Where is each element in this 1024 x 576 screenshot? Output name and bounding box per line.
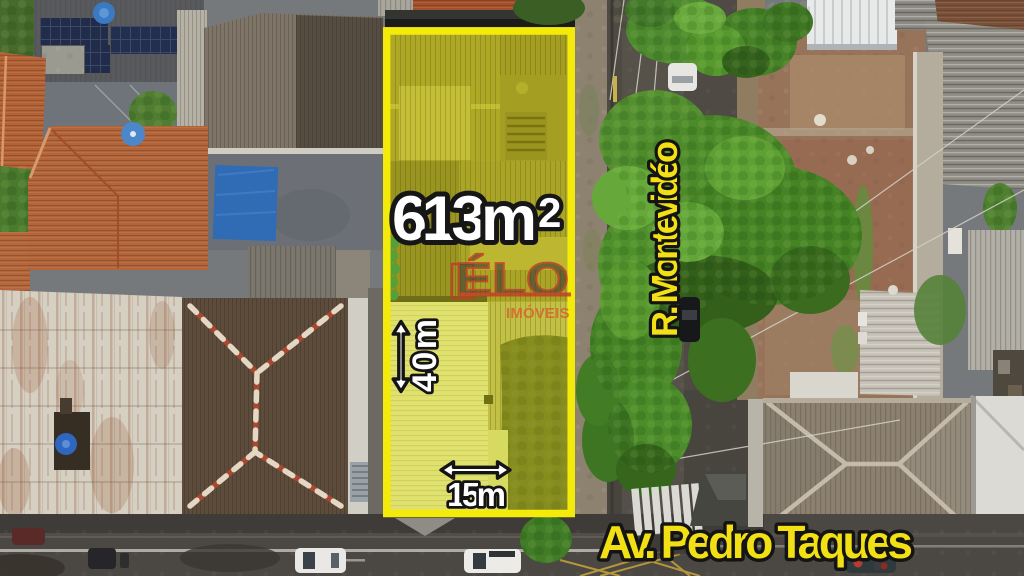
svg-text:15m: 15m	[447, 476, 506, 513]
svg-text:ÉLO: ÉLO	[455, 253, 569, 305]
svg-text:2: 2	[538, 189, 561, 236]
svg-text:IMÓVEIS: IMÓVEIS	[506, 304, 572, 322]
svg-text:40m: 40m	[406, 319, 444, 392]
svg-text:613m: 613m	[392, 184, 537, 254]
svg-text:R. Montevidéo: R. Montevidéo	[644, 141, 685, 337]
svg-text:Av. Pedro Taques: Av. Pedro Taques	[599, 516, 913, 568]
